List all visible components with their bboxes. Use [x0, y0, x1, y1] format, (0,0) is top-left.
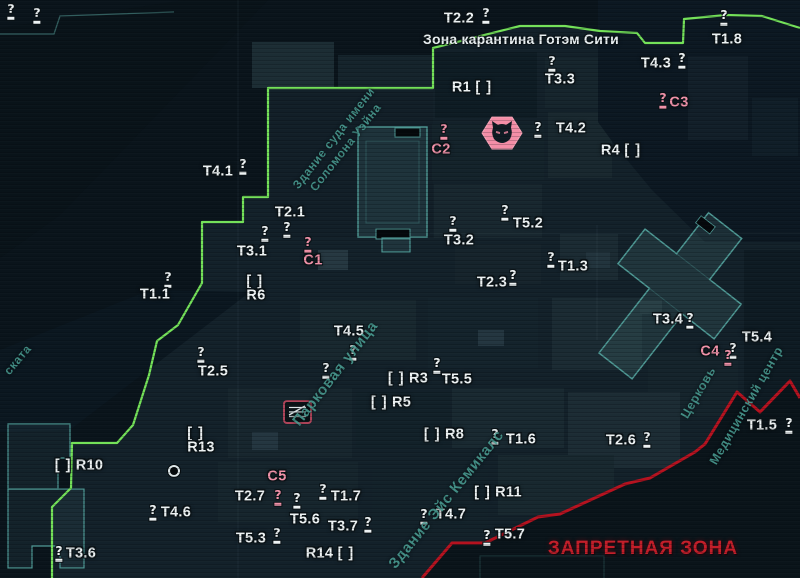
question-underline [55, 559, 62, 562]
question-glyph: ? [785, 417, 792, 430]
question-mark-icon[interactable]: ? [293, 492, 300, 509]
question-mark-icon[interactable]: ? [55, 545, 62, 562]
riddle-marker-label: R14 [306, 545, 334, 561]
catwoman-marker-label: C5 [267, 469, 286, 484]
question-underline [7, 17, 14, 20]
question-underline [659, 106, 666, 109]
question-underline [449, 229, 456, 232]
question-glyph: ? [7, 3, 14, 16]
riddle-marker-label: R11 [495, 484, 522, 500]
question-mark-icon[interactable]: ? [364, 516, 371, 533]
question-mark-icon[interactable]: ? [273, 527, 280, 544]
question-mark-icon[interactable]: ? [509, 269, 516, 286]
trophy-marker-label: T3.2 [444, 233, 474, 248]
question-underline [785, 431, 792, 434]
question-mark-icon[interactable]: ? [659, 92, 666, 109]
riddle-marker[interactable]: [ ] R10 [55, 458, 104, 473]
question-glyph: ? [659, 92, 666, 105]
question-glyph: ? [483, 529, 490, 542]
question-glyph: ? [678, 52, 685, 65]
question-mark-icon[interactable]: ? [164, 271, 171, 288]
bracket-icon: [ ] [475, 79, 492, 95]
question-underline [33, 21, 40, 24]
riddle-marker[interactable]: R14 [ ] [306, 546, 355, 561]
question-glyph: ? [293, 492, 300, 505]
trophy-marker-label: T4.3 [641, 56, 671, 71]
bracket-icon: [ ] [371, 394, 388, 410]
catwoman-marker-label: C4 [700, 344, 719, 359]
question-underline [364, 530, 371, 533]
question-underline [440, 137, 447, 140]
riddle-marker[interactable]: R4 [ ] [601, 143, 641, 158]
question-glyph: ? [686, 312, 693, 325]
question-glyph: ? [724, 349, 731, 362]
question-mark-icon[interactable]: ? [449, 215, 456, 232]
trophy-marker-label: T2.5 [198, 364, 228, 379]
trophy-marker-label: T5.4 [742, 330, 772, 345]
riddle-marker[interactable]: [ ] R8 [424, 427, 464, 442]
trophy-marker-label: T5.2 [513, 216, 543, 231]
question-underline [239, 172, 246, 175]
quarantine-zone-title: Зона карантина Готэм Сити [423, 31, 619, 47]
trophy-marker-label: T3.4 [653, 312, 683, 327]
riddle-marker-label: R5 [392, 394, 411, 410]
question-glyph: ? [433, 357, 440, 370]
question-mark-icon[interactable]: ? [239, 158, 246, 175]
trophy-marker-label: T3.7 [328, 519, 358, 534]
riddle-marker-label: R10 [76, 457, 104, 473]
question-underline [501, 218, 508, 221]
trophy-marker-label: T4.2 [556, 121, 586, 136]
riddle-marker[interactable]: R1 [ ] [452, 80, 492, 95]
question-underline [724, 363, 731, 366]
game-map-canvas[interactable]: Зона карантина Готэм Сити ЗАПРЕТНАЯ ЗОНА… [0, 0, 800, 578]
bracket-icon: [ ] [624, 142, 641, 158]
question-underline [273, 541, 280, 544]
trophy-marker-label: T5.6 [290, 512, 320, 527]
question-mark-icon[interactable]: ? [33, 7, 40, 24]
question-mark-icon[interactable]: ? [304, 236, 311, 253]
trophy-marker-label: T3.6 [66, 546, 96, 561]
riddle-marker[interactable]: [ ]R6 [246, 274, 265, 303]
trophy-marker-label: T5.7 [495, 527, 525, 542]
trophy-marker-label: T1.8 [712, 32, 742, 47]
question-underline [197, 360, 204, 363]
riddle-marker-label: R8 [445, 426, 464, 442]
question-glyph: ? [239, 158, 246, 171]
riddle-marker-label: R4 [601, 142, 620, 158]
question-glyph: ? [33, 7, 40, 20]
question-glyph: ? [534, 121, 541, 134]
trophy-marker-label: T2.6 [606, 433, 636, 448]
question-underline [547, 265, 554, 268]
question-glyph: ? [274, 489, 281, 502]
catwoman-marker-label: C3 [669, 95, 688, 110]
trophy-marker-label: T2.2 [444, 11, 474, 26]
question-mark-icon[interactable]: ? [274, 489, 281, 506]
question-glyph: ? [643, 431, 650, 444]
trophy-marker-label: T3.1 [237, 244, 267, 259]
question-underline [283, 235, 290, 238]
question-glyph: ? [164, 271, 171, 284]
trophy-marker-label: T1.3 [558, 259, 588, 274]
question-glyph: ? [440, 123, 447, 136]
question-glyph: ? [149, 504, 156, 517]
riddle-marker-label: R1 [452, 79, 471, 95]
riddle-marker-label: R6 [246, 288, 265, 304]
question-mark-icon[interactable]: ? [283, 221, 290, 238]
question-glyph: ? [547, 251, 554, 264]
question-mark-icon[interactable]: ? [534, 121, 541, 138]
bracket-icon: [ ] [424, 426, 441, 442]
riddle-marker[interactable]: [ ] R3 [388, 371, 428, 386]
question-glyph: ? [482, 7, 489, 20]
map-geometry [0, 0, 800, 578]
question-mark-icon[interactable]: ? [643, 431, 650, 448]
trophy-marker-label: T4.6 [161, 505, 191, 520]
question-mark-icon[interactable]: ? [724, 349, 731, 366]
trophy-marker-label: T4.1 [203, 164, 233, 179]
trophy-marker-label: T1.1 [140, 287, 170, 302]
forbidden-zone-title: ЗАПРЕТНАЯ ЗОНА [548, 538, 738, 560]
question-underline [509, 283, 516, 286]
trophy-marker-label: T5.5 [442, 372, 472, 387]
question-underline [720, 23, 727, 26]
trophy-marker-label: T2.3 [477, 275, 507, 290]
courthouse-building-outline [358, 127, 427, 252]
riddle-marker[interactable]: [ ] R11 [474, 485, 522, 500]
riddle-marker[interactable]: [ ]R13 [187, 426, 215, 455]
question-underline [319, 497, 326, 500]
question-glyph: ? [283, 221, 290, 234]
question-mark-icon[interactable]: ? [149, 504, 156, 521]
question-mark-icon[interactable]: ? [197, 346, 204, 363]
question-mark-icon[interactable]: ? [440, 123, 447, 140]
trophy-marker-label: T2.1 [275, 205, 305, 220]
question-underline [293, 506, 300, 509]
map-dot-marker[interactable] [168, 465, 180, 477]
question-underline [433, 371, 440, 374]
question-mark-icon[interactable]: ? [785, 417, 792, 434]
question-glyph: ? [501, 204, 508, 217]
question-mark-icon[interactable]: ? [547, 251, 554, 268]
question-mark-icon[interactable]: ? [483, 529, 490, 546]
question-glyph: ? [197, 346, 204, 359]
question-glyph: ? [449, 215, 456, 228]
catwoman-marker-label: C2 [431, 142, 450, 157]
question-glyph: ? [548, 55, 555, 68]
question-underline [274, 503, 281, 506]
trophy-marker-label: T1.6 [506, 432, 536, 447]
question-underline [483, 543, 490, 546]
question-mark-icon[interactable]: ? [548, 55, 555, 72]
question-mark-icon[interactable]: ? [7, 3, 14, 20]
trophy-marker-label: T1.5 [747, 418, 777, 433]
trophy-marker-label: T1.7 [331, 489, 361, 504]
question-underline [482, 21, 489, 24]
question-glyph: ? [364, 516, 371, 529]
question-underline [261, 239, 268, 242]
riddle-marker[interactable]: [ ] R5 [371, 395, 411, 410]
question-mark-icon[interactable]: ? [720, 9, 727, 26]
question-glyph: ? [304, 236, 311, 249]
question-mark-icon[interactable]: ? [482, 7, 489, 24]
question-mark-icon[interactable]: ? [261, 225, 268, 242]
trophy-marker-label: T3.3 [545, 72, 575, 87]
question-underline [149, 518, 156, 521]
question-glyph: ? [720, 9, 727, 22]
bracket-icon: [ ] [55, 457, 72, 473]
trophy-marker-label: T2.7 [235, 489, 265, 504]
question-glyph: ? [273, 527, 280, 540]
bracket-icon: [ ] [474, 484, 491, 500]
question-mark-icon[interactable]: ? [678, 52, 685, 69]
question-underline [678, 66, 685, 69]
bracket-icon: [ ] [388, 370, 405, 386]
riddle-marker-label: R3 [409, 370, 428, 386]
bracket-icon: [ ] [338, 545, 355, 561]
question-mark-icon[interactable]: ? [501, 204, 508, 221]
question-glyph: ? [55, 545, 62, 558]
question-glyph: ? [261, 225, 268, 238]
question-glyph: ? [509, 269, 516, 282]
question-underline [534, 135, 541, 138]
question-underline [686, 326, 693, 329]
question-mark-icon[interactable]: ? [433, 357, 440, 374]
question-mark-icon[interactable]: ? [686, 312, 693, 329]
catwoman-marker-label: C1 [303, 253, 322, 268]
riddle-marker-label: R13 [187, 440, 215, 456]
question-mark-icon[interactable]: ? [319, 483, 326, 500]
question-underline [643, 445, 650, 448]
trophy-marker-label: T5.3 [236, 531, 266, 546]
question-glyph: ? [319, 483, 326, 496]
